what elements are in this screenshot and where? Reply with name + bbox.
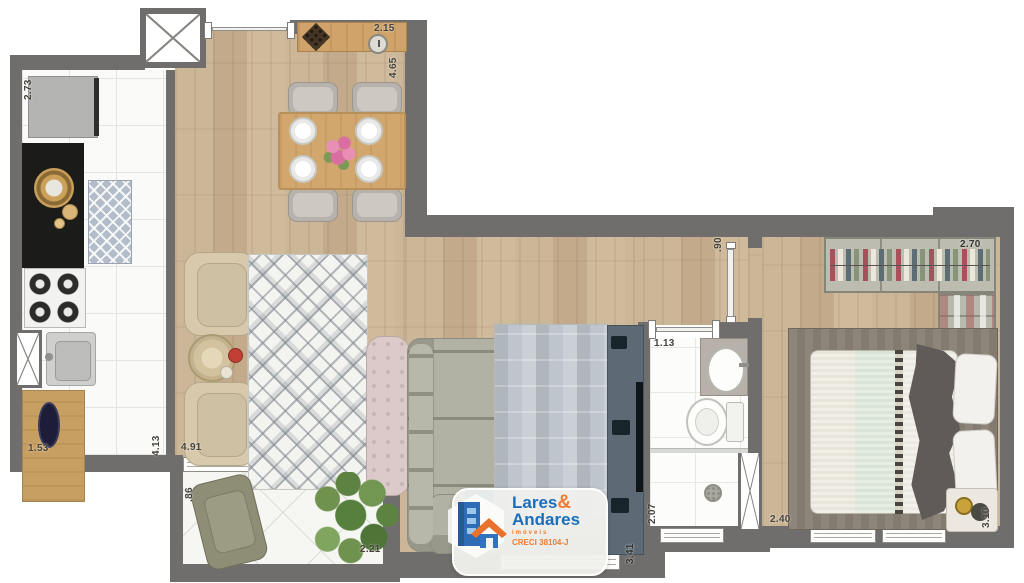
dimension-label: 4.91	[181, 443, 202, 453]
bedroom-window	[882, 528, 946, 543]
shower-drain	[704, 484, 722, 502]
faucet-icon	[739, 363, 749, 367]
toilet	[686, 398, 728, 446]
bedroom-door-jamb	[726, 242, 736, 249]
brand-logo: Lares& Andares imóveis CRECI 38104-J	[440, 484, 616, 578]
place-setting	[355, 155, 383, 183]
dimension-label: 3.10	[982, 507, 992, 528]
kitchen-left-wall	[10, 55, 22, 472]
shaft-x-icon	[140, 8, 206, 68]
washbasin	[707, 347, 745, 393]
dimension-label: .90	[714, 237, 724, 252]
red-cup	[228, 348, 243, 363]
sofa-pillows	[409, 344, 433, 544]
floor-plan: 2.73 2.15 4.65 1.53 4.13 4.91 .86 2.21 2…	[0, 0, 1024, 583]
dimension-label: 4.13	[152, 435, 162, 456]
shower-partition	[650, 448, 748, 453]
tv-decor	[611, 336, 627, 349]
dimension-label: 1.13	[654, 339, 675, 349]
place-setting	[289, 117, 317, 145]
clock-icon	[368, 34, 388, 54]
kitchen-sink-unit	[46, 332, 96, 386]
small-bowl	[62, 204, 78, 220]
dimension-label: 2.21	[360, 545, 381, 555]
dining-chair	[352, 188, 402, 222]
bathroom-door-jamb	[648, 320, 656, 339]
hanging-clothes	[830, 249, 990, 281]
door-threshold-floor	[748, 248, 762, 320]
sink-bowl	[34, 168, 74, 208]
main-horizontal-wall	[405, 215, 1014, 237]
dimension-label: 1.53	[28, 444, 49, 454]
bathroom-window	[660, 528, 724, 543]
hall-bedroom-wall-stub	[748, 237, 762, 248]
stove	[24, 268, 86, 328]
entry-door-jamb	[287, 22, 295, 39]
small-bowl	[54, 218, 65, 229]
kitchen-divider-wall	[166, 70, 175, 455]
armchair	[184, 252, 256, 336]
bathroom-shaft-x-icon	[738, 450, 762, 532]
kitchen-runner-rug	[88, 180, 132, 264]
dimension-label: 3.41	[626, 543, 636, 564]
dimension-label: 2.70	[960, 240, 981, 250]
bathroom-vanity	[700, 338, 748, 396]
dimension-label: 2.15	[374, 24, 395, 34]
place-setting	[355, 117, 383, 145]
logo-license: CRECI 38104-J	[512, 538, 604, 547]
bedroom-door-jamb	[726, 316, 736, 323]
logo-tagline: imóveis	[512, 530, 604, 536]
entry-door	[212, 27, 287, 31]
dimension-label: 2.07	[648, 503, 658, 524]
faucet-icon	[45, 353, 53, 361]
counter-vase	[38, 402, 60, 448]
bedroom-door	[727, 249, 734, 317]
dining-right-wall	[405, 20, 427, 217]
potted-plant	[312, 472, 398, 568]
fridge	[28, 76, 98, 138]
logo-line1: Lares&	[512, 494, 604, 511]
kitchen-shaft-x-icon	[14, 330, 42, 388]
balcony-left-wall	[170, 472, 183, 568]
dining-chair	[288, 82, 338, 116]
bed-trim-stripe	[895, 350, 903, 514]
pillow	[952, 353, 998, 425]
bedroom-window	[810, 528, 876, 543]
fridge-handle	[94, 78, 99, 136]
tv-decor	[612, 420, 630, 435]
kitchen-top-wall	[10, 55, 145, 70]
bathroom-door	[656, 327, 713, 332]
dining-chair	[288, 188, 338, 222]
dining-chair	[352, 82, 402, 116]
toilet-tank	[726, 402, 744, 442]
dimension-label: 4.65	[389, 57, 399, 78]
saucer	[220, 366, 233, 379]
armchair	[184, 382, 256, 466]
flower-centerpiece	[322, 134, 358, 170]
place-setting	[289, 155, 317, 183]
building-logo-icon	[444, 492, 508, 560]
entry-door-jamb	[204, 22, 212, 39]
dimension-label: 2.40	[770, 515, 791, 525]
bedroom-right-wall	[1000, 215, 1014, 548]
diamond-rug	[248, 254, 368, 490]
dimension-label: .86	[185, 487, 195, 502]
dimension-label: 2.73	[24, 79, 34, 100]
logo-text: Lares& Andares imóveis CRECI 38104-J	[512, 494, 604, 547]
tv-screen	[636, 382, 643, 492]
logo-line2: Andares	[512, 511, 604, 528]
bathroom-door-jamb	[712, 320, 720, 339]
